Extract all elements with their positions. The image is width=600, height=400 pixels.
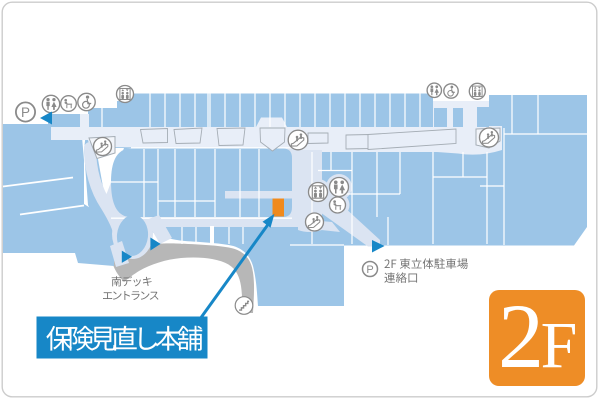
svg-text:2: 2: [498, 285, 544, 387]
svg-text:F: F: [541, 309, 578, 382]
svg-text:P: P: [21, 105, 30, 120]
svg-text:P: P: [366, 264, 373, 276]
